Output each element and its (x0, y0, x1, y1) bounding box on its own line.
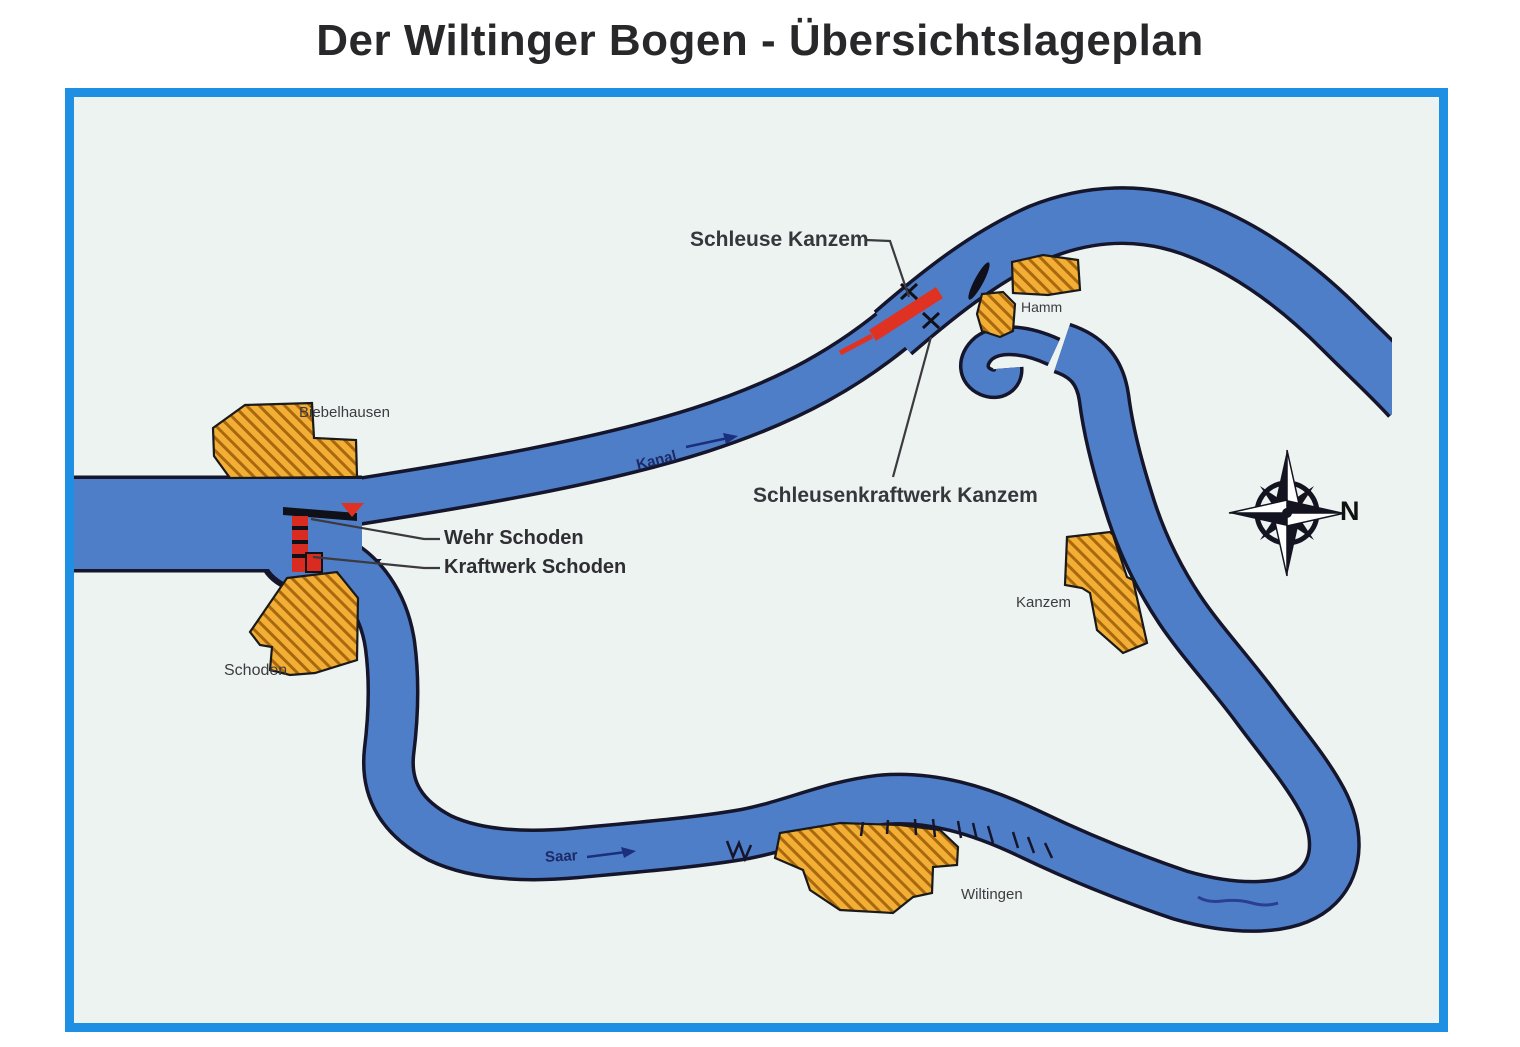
label-north: N (1340, 496, 1360, 527)
label-schleuse-kanzem: Schleuse Kanzem (690, 228, 869, 252)
kraftwerk-schoden-structure (306, 553, 322, 572)
label-schleusenkraftwerk-kanzem: Schleusenkraftwerk Kanzem (753, 484, 1038, 508)
town-hamm-upper (1012, 255, 1080, 295)
label-town-hamm: Hamm (1021, 299, 1062, 315)
label-saar: Saar (545, 847, 578, 866)
river-cut-mask (1392, 328, 1439, 468)
label-town-schoden: Schoden (224, 662, 287, 680)
town-hamm-lower (977, 292, 1015, 337)
map-canvas (0, 0, 1520, 1047)
page-title: Der Wiltinger Bogen - Übersichtslageplan (0, 16, 1520, 66)
label-town-biebelhausen: Biebelhausen (299, 404, 390, 421)
label-town-wiltingen: Wiltingen (961, 886, 1023, 903)
page: Der Wiltinger Bogen - Übersichtslageplan… (0, 0, 1520, 1047)
label-kraftwerk-schoden: Kraftwerk Schoden (444, 556, 626, 579)
label-town-kanzem: Kanzem (1016, 594, 1071, 611)
label-wehr-schoden: Wehr Schoden (444, 527, 584, 550)
